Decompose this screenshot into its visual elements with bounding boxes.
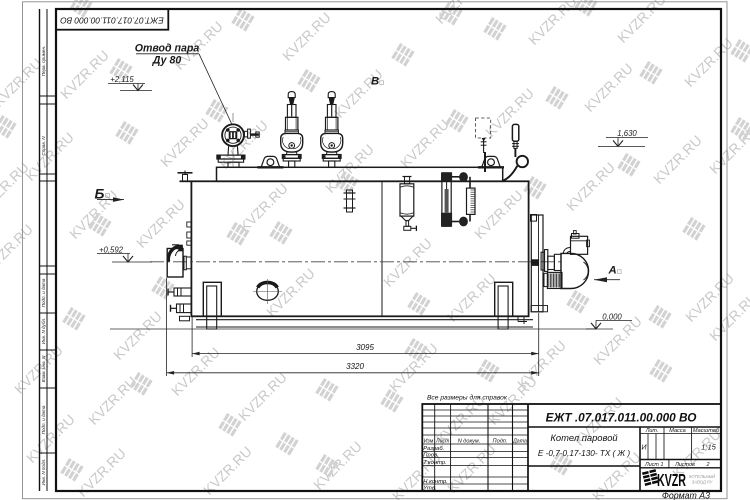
svg-text:Лит.: Лит. bbox=[645, 428, 659, 434]
svg-text:Разраб.: Разраб. bbox=[423, 446, 444, 452]
svg-text:Т.контр.: Т.контр. bbox=[423, 460, 446, 466]
svg-text:3320: 3320 bbox=[346, 362, 364, 371]
svg-text:Масса: Масса bbox=[669, 428, 686, 434]
svg-text:Подп. и дата: Подп. и дата bbox=[41, 278, 46, 307]
svg-text:Все размеры для справок: Все размеры для справок bbox=[427, 394, 508, 402]
svg-text:КОТЕЛЬНЫЙ: КОТЕЛЬНЫЙ bbox=[689, 474, 715, 479]
svg-text:Листов: Листов bbox=[674, 462, 695, 468]
svg-text:А: А bbox=[608, 265, 617, 277]
svg-text:2: 2 bbox=[706, 462, 710, 468]
svg-text:Б: Б bbox=[95, 186, 105, 202]
svg-text:Инв. N дубл.: Инв. N дубл. bbox=[41, 318, 46, 345]
svg-text:Ду 80: Ду 80 bbox=[152, 55, 182, 67]
svg-text:3095: 3095 bbox=[356, 343, 374, 352]
svg-text:ЕЖТ .07.017.011.00.000 ВО: ЕЖТ .07.017.011.00.000 ВО bbox=[546, 411, 697, 425]
svg-text:Утв.: Утв. bbox=[422, 486, 436, 492]
svg-text:ЕЖТ.07.017.011.00.000 ВО: ЕЖТ.07.017.011.00.000 ВО bbox=[60, 15, 164, 25]
svg-text:Инв. N подл.: Инв. N подл. bbox=[41, 459, 46, 486]
svg-text:N докум.: N докум. bbox=[458, 439, 481, 445]
svg-text:Перв. примен.: Перв. примен. bbox=[41, 46, 46, 77]
svg-text:В: В bbox=[371, 76, 379, 88]
svg-text:Дата: Дата bbox=[512, 439, 527, 445]
svg-text:Пров.: Пров. bbox=[423, 453, 438, 459]
svg-text:Е -0,7-0,17-130- ТХ ( Ж ): Е -0,7-0,17-130- ТХ ( Ж ) bbox=[538, 449, 630, 458]
svg-text:Н.контр.: Н.контр. bbox=[423, 479, 448, 485]
svg-text:Взам. инв. N: Взам. инв. N bbox=[41, 355, 46, 382]
svg-text:Подп. и дата: Подп. и дата bbox=[41, 405, 46, 434]
svg-text:Формат А3: Формат А3 bbox=[662, 491, 710, 500]
svg-text:+2,115: +2,115 bbox=[110, 75, 134, 84]
svg-text:Справ. N: Справ. N bbox=[41, 136, 46, 156]
svg-text:Лист: Лист bbox=[435, 439, 450, 445]
svg-text:Лист: Лист bbox=[644, 462, 659, 468]
svg-text:Изм: Изм bbox=[424, 439, 434, 445]
svg-text:Масштаб: Масштаб bbox=[693, 428, 720, 434]
svg-text:1: 1 bbox=[661, 462, 664, 468]
svg-text:1:15: 1:15 bbox=[701, 443, 717, 452]
svg-text:Котел паровой: Котел паровой bbox=[550, 432, 618, 443]
svg-text:KVZR: KVZR bbox=[657, 470, 686, 490]
svg-text:Отвод пара: Отвод пара bbox=[135, 43, 200, 55]
svg-text:1,630: 1,630 bbox=[617, 129, 637, 138]
svg-text:Подп.: Подп. bbox=[493, 439, 508, 445]
svg-text:ЗАВОД РУ: ЗАВОД РУ bbox=[692, 480, 714, 485]
